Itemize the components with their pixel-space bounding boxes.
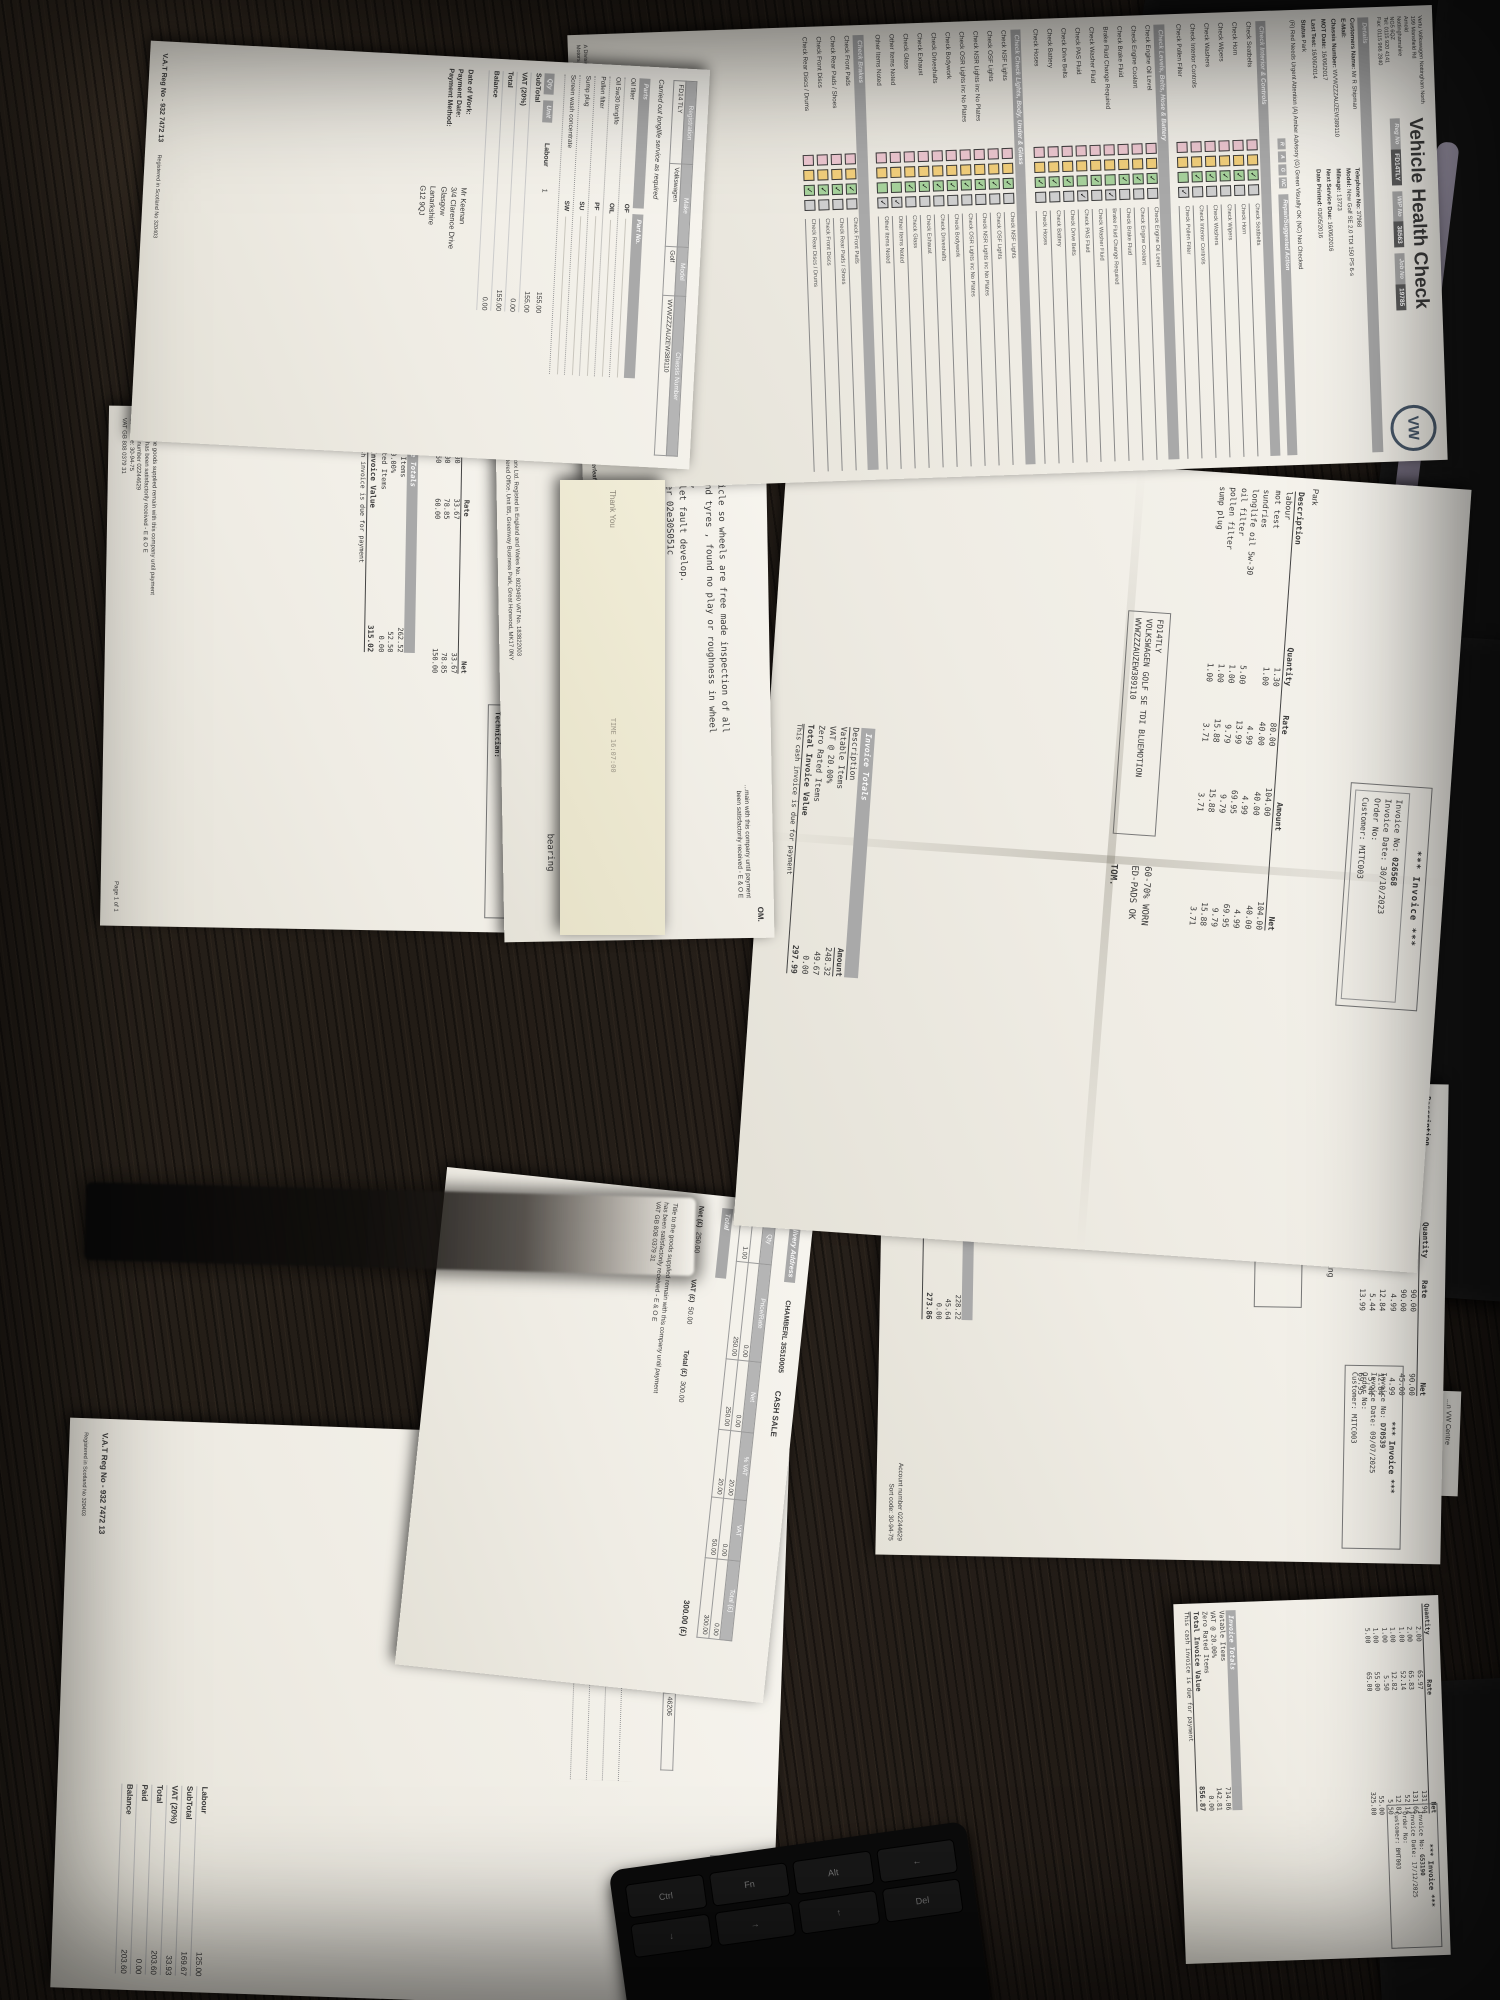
vhc-badge: Job No 19785 <box>1394 254 1406 311</box>
labour-amount: 155.00 <box>532 292 543 314</box>
keyboard-key: Ctrl <box>625 1874 707 1919</box>
vatable-value: 262.52 <box>394 627 404 652</box>
amber-checkbox <box>803 170 814 181</box>
qty-header: Qty <box>543 73 555 94</box>
vehicle-value-cell: 46206 <box>661 1693 676 1770</box>
not-checked-checkbox <box>1147 188 1158 199</box>
vat-reg-number: V.A.T Reg No - 932 7472 13 <box>157 53 169 142</box>
red-checkbox <box>1117 144 1128 155</box>
till-receipt-slip: Thank You TIME 16:07:00 <box>560 480 665 935</box>
amber-checkbox <box>1002 163 1013 174</box>
customer-code: MITC003 <box>1350 1414 1359 1444</box>
customer-address: Mr Keenan3/4 Clarence DriveGlasgowLanark… <box>415 185 469 250</box>
vat-value: 142.81 <box>1214 1787 1223 1811</box>
signature: TOM. <box>1103 863 1120 923</box>
total-invoice-value: 315.02 <box>365 625 376 652</box>
labour-qty: 1 <box>539 172 549 192</box>
service-invoice-sheet: RegistrationMakeModelChassis Number FD14… <box>130 41 710 470</box>
not-checked-checkbox <box>1063 191 1074 202</box>
vat-reg-number: V.A.T Reg No - 932 7472 13 <box>97 1433 110 1535</box>
red-checkbox <box>1191 141 1202 152</box>
green-checkbox: ✓ <box>1206 171 1217 182</box>
red-checkbox <box>1247 139 1258 150</box>
amber-checkbox <box>988 163 999 174</box>
red-checkbox <box>960 149 971 160</box>
amber-checkbox <box>831 169 842 180</box>
amber-checkbox <box>904 166 915 177</box>
not-checked-checkbox <box>905 196 916 207</box>
vehicle-box: FD14TLYVOLKSWAGEN GOLF SE TDI BLUEMOTION… <box>1113 610 1172 836</box>
keyboard-key: ↑ <box>798 1890 880 1935</box>
vhc-sections: Check Interior & Controls Check Seatbelt… <box>797 21 1281 472</box>
not-checked-checkbox <box>961 194 972 205</box>
amber-checkbox <box>845 168 856 179</box>
keyboard-key: Fn <box>708 1862 790 1907</box>
red-checkbox <box>1033 147 1044 158</box>
green-checkbox: ✓ <box>961 179 972 190</box>
total-invoice-value: 297.99 <box>788 944 801 974</box>
not-checked-checkbox <box>818 199 829 210</box>
red-checkbox <box>1205 141 1216 152</box>
receipt-time: TIME 16:07:00 <box>608 718 617 773</box>
green-checkbox <box>1178 172 1189 183</box>
red-checkbox <box>1219 140 1230 151</box>
not-checked-checkbox <box>919 196 930 207</box>
not-checked-checkbox <box>804 200 815 211</box>
green-checkbox <box>891 182 902 193</box>
not-checked-checkbox <box>1035 192 1046 203</box>
amber-checkbox <box>1146 158 1157 169</box>
red-checkbox <box>802 155 813 166</box>
red-checkbox <box>1075 145 1086 156</box>
not-checked-checkbox <box>1234 185 1245 196</box>
green-checkbox <box>1076 175 1087 186</box>
green-checkbox: ✓ <box>1003 178 1014 189</box>
red-checkbox <box>918 151 929 162</box>
red-checkbox <box>890 152 901 163</box>
keyboard-key: ↓ <box>630 1914 712 1959</box>
not-checked-checkbox <box>947 195 958 206</box>
green-checkbox: ✓ <box>989 178 1000 189</box>
company-reg-number: Registered in Scotland No 320403 <box>152 154 162 238</box>
green-checkbox: ✓ <box>804 185 815 196</box>
green-checkbox: ✓ <box>1248 169 1259 180</box>
amber-checkbox <box>1048 161 1059 172</box>
unit-header: Unit <box>542 100 554 123</box>
not-checked-checkbox <box>1220 185 1231 196</box>
invoice-date: 09/07/2025 <box>1368 1431 1377 1473</box>
gear-status-note: Park <box>1309 489 1321 506</box>
amber-checkbox <box>1205 156 1216 167</box>
amber-checkbox <box>918 166 929 177</box>
red-checkbox <box>1145 143 1156 154</box>
vw-logo-icon: VW <box>1390 404 1438 452</box>
keyboard-key: ← <box>876 1839 958 1884</box>
red-checkbox <box>830 154 841 165</box>
red-checkbox <box>816 154 827 165</box>
green-checkbox: ✓ <box>1048 176 1059 187</box>
vagworx-invoice-sheet: Vehicle: FD14TLYMake: VOLKSWAGEN GOLF SE… <box>100 406 564 934</box>
amber-checkbox <box>1090 160 1101 171</box>
green-checkbox: ✓ <box>1220 170 1231 181</box>
green-checkbox: ✓ <box>1034 177 1045 188</box>
not-checked-checkbox <box>1206 186 1217 197</box>
red-checkbox <box>1002 148 1013 159</box>
condition-notes: 60-70% WORNED-PADS OK <box>1124 865 1154 926</box>
account-line: CHAMBERL 35510005 <box>775 1300 792 1374</box>
vat-value: 49.67 <box>810 951 823 976</box>
payment-terms-fragment: ...main with this company until paymentb… <box>732 728 752 898</box>
page-indicator: Page 1 of 1 <box>110 881 118 912</box>
not-checked-checkbox <box>846 198 857 209</box>
total-invoice-value: 856.87 <box>1196 1786 1206 1812</box>
not-checked-checkbox <box>1091 190 1102 201</box>
vhc-title: Vehicle Health Check <box>1404 117 1433 310</box>
invoice-number: G53190 <box>1418 1854 1426 1876</box>
rag-column-header: NC <box>1279 177 1287 188</box>
vatable-value: 714.06 <box>1223 1787 1232 1811</box>
vat-value: 45.64 <box>942 1299 952 1320</box>
green-checkbox: ✓ <box>1234 170 1245 181</box>
sale-type: CASH SALE <box>767 1390 783 1437</box>
amber-checkbox <box>890 167 901 178</box>
vhc-badge: Reg No FD14TLY <box>1389 118 1402 185</box>
amber-checkbox <box>1034 162 1045 173</box>
zero-rated-value: 0.00 <box>933 1303 943 1320</box>
vagworx-footer: VagWorx Ltd. Registed in England and Wal… <box>502 444 521 661</box>
green-checkbox: ✓ <box>947 180 958 191</box>
amber-checkbox <box>1104 159 1115 170</box>
not-checked-checkbox <box>989 193 1000 204</box>
note-fragment: bearing <box>543 833 557 871</box>
desk-photo: Invoice Invoice No: 35146 Invoice Date: … <box>0 0 1500 2000</box>
total-band-value: 300.00 (£) <box>677 1599 692 1636</box>
rag-column-header: G <box>1278 164 1286 175</box>
amber-checkbox <box>1219 155 1230 166</box>
green-checkbox: ✓ <box>1146 173 1157 184</box>
invoice-rows: 1.00 33.67 33.67 1.00 78.85 78.85 2.50 6… <box>429 423 462 673</box>
red-checkbox <box>988 148 999 159</box>
green-checkbox: ✓ <box>831 184 842 195</box>
payment-fields: Date of Work:Payment Date:Payment Method… <box>443 68 474 128</box>
red-checkbox <box>1047 146 1058 157</box>
red-checkbox <box>1061 146 1072 157</box>
total-invoice-value: 273.86 <box>923 1292 934 1319</box>
vhc-section: Check Check Lights, Body, Under & Glass … <box>870 29 1036 469</box>
customer-code: BMT003 <box>1394 1848 1402 1870</box>
initials: OM. <box>755 907 766 922</box>
legal-footer: Title to the goods supplied remain with … <box>113 418 158 749</box>
green-checkbox: ✓ <box>933 180 944 191</box>
red-checkbox <box>1233 140 1244 151</box>
invoice-g53190-sheet: *** Invoice *** Invoice No: G53190 Invoi… <box>1173 1595 1450 1964</box>
not-checked-checkbox <box>1248 184 1259 195</box>
total-band-label: Total <box>715 1208 734 1279</box>
not-checked-checkbox <box>1133 188 1144 199</box>
summary-item: Total (£) 300.00 <box>674 1349 697 1403</box>
vhc-section: Check Levels, Belts, Hose & Battery Chec… <box>1028 24 1180 463</box>
vhc-badge: WIP No 38563 <box>1392 191 1404 248</box>
amber-checkbox <box>1132 158 1143 169</box>
toner-smear <box>84 1182 696 1276</box>
green-checkbox <box>877 182 888 193</box>
amber-checkbox <box>960 164 971 175</box>
amber-checkbox <box>946 165 957 176</box>
red-checkbox <box>844 153 855 164</box>
green-checkbox: ✓ <box>1118 174 1129 185</box>
rag-column-header: R <box>1277 138 1285 149</box>
totals-block: Labour 125.00 SubTotal 169.67 VAT (20%) … <box>115 1784 212 1977</box>
keyboard-key: → <box>714 1902 796 1947</box>
invoice-026568-sheet: *** Invoice *** Invoice No: 026568 Invoi… <box>733 442 1471 1273</box>
red-checkbox <box>974 149 985 160</box>
dealer-address: Vertu Volkswagen Nottingham North199 Man… <box>1374 15 1425 109</box>
amber-checkbox <box>1191 156 1202 167</box>
green-checkbox: ✓ <box>975 179 986 190</box>
not-checked-checkbox <box>832 199 843 210</box>
keyboard-key: Del <box>881 1878 963 1923</box>
customer-code: MITC003 <box>1356 845 1367 879</box>
vatable-value: 248.32 <box>821 947 834 977</box>
invoice-number: D70539 <box>1378 1423 1386 1448</box>
not-checked-checkbox: ✓ <box>891 197 902 208</box>
green-checkbox: ✓ <box>1062 176 1073 187</box>
not-checked-checkbox <box>933 195 944 206</box>
amber-checkbox <box>1118 159 1129 170</box>
amber-checkbox <box>876 167 887 178</box>
red-checkbox <box>1131 143 1142 154</box>
not-checked-checkbox: ✓ <box>1105 189 1116 200</box>
amber-checkbox <box>932 165 943 176</box>
red-checkbox <box>1177 142 1188 153</box>
summary-item: VAT (£) 50.00 <box>682 1278 705 1325</box>
zero-rated-value: 0.00 <box>1206 1795 1215 1811</box>
not-checked-checkbox <box>1119 189 1130 200</box>
amber-checkbox <box>1177 157 1188 168</box>
rag-column-header: A <box>1278 151 1286 162</box>
red-checkbox <box>876 152 887 163</box>
not-checked-checkbox <box>975 194 986 205</box>
labour-label: Labour <box>540 143 551 167</box>
not-checked-checkbox: ✓ <box>1178 187 1189 198</box>
green-checkbox: ✓ <box>818 184 829 195</box>
green-checkbox: ✓ <box>1132 173 1143 184</box>
amber-checkbox <box>1247 154 1258 165</box>
red-checkbox <box>946 150 957 161</box>
vat-value: 52.50 <box>385 631 395 652</box>
not-checked-checkbox <box>1049 191 1060 202</box>
not-checked-checkbox: ✓ <box>1077 190 1088 201</box>
account-number: Account number 02244629 <box>894 1463 904 1541</box>
red-checkbox <box>904 151 915 162</box>
zero-rated-value: 0.00 <box>375 635 385 652</box>
company-reg-number: Registered in Scotland No 320403 <box>80 1432 89 1516</box>
invoice-number: 026568 <box>1389 857 1400 886</box>
green-checkbox: ✓ <box>919 181 930 192</box>
green-checkbox: ✓ <box>1192 171 1203 182</box>
zero-rated-value: 0.00 <box>799 955 812 975</box>
amber-checkbox <box>817 169 828 180</box>
green-checkbox: ✓ <box>1090 175 1101 186</box>
receipt-thank-you: Thank You <box>607 490 618 528</box>
vhc-section: Check Interior & Controls Check Seatbelt… <box>1171 21 1281 459</box>
vatable-value: 228.22 <box>952 1295 962 1320</box>
amber-checkbox <box>974 164 985 175</box>
green-checkbox <box>1104 174 1115 185</box>
invoice-date: 17/12/2025 <box>1410 1861 1418 1897</box>
green-checkbox: ✓ <box>845 183 856 194</box>
red-checkbox <box>1103 144 1114 155</box>
amber-checkbox <box>1233 155 1244 166</box>
red-checkbox <box>1089 145 1100 156</box>
invoice-date: 30/10/2023 <box>1376 866 1388 915</box>
invoice-rows: 2.00 65.97 131.94 2.00 65.83 131.66 1.00… <box>1362 1604 1428 1816</box>
red-checkbox <box>932 150 943 161</box>
not-checked-checkbox: ✓ <box>877 197 888 208</box>
amber-checkbox <box>1076 160 1087 171</box>
keyboard-key: Alt <box>792 1850 874 1895</box>
not-checked-checkbox <box>1192 186 1203 197</box>
not-checked-checkbox <box>1003 193 1014 204</box>
vhc-section: Check Brakes Check Front Pads ✓ Check Fr… <box>797 35 879 472</box>
amber-checkbox <box>1062 161 1073 172</box>
green-checkbox: ✓ <box>905 181 916 192</box>
